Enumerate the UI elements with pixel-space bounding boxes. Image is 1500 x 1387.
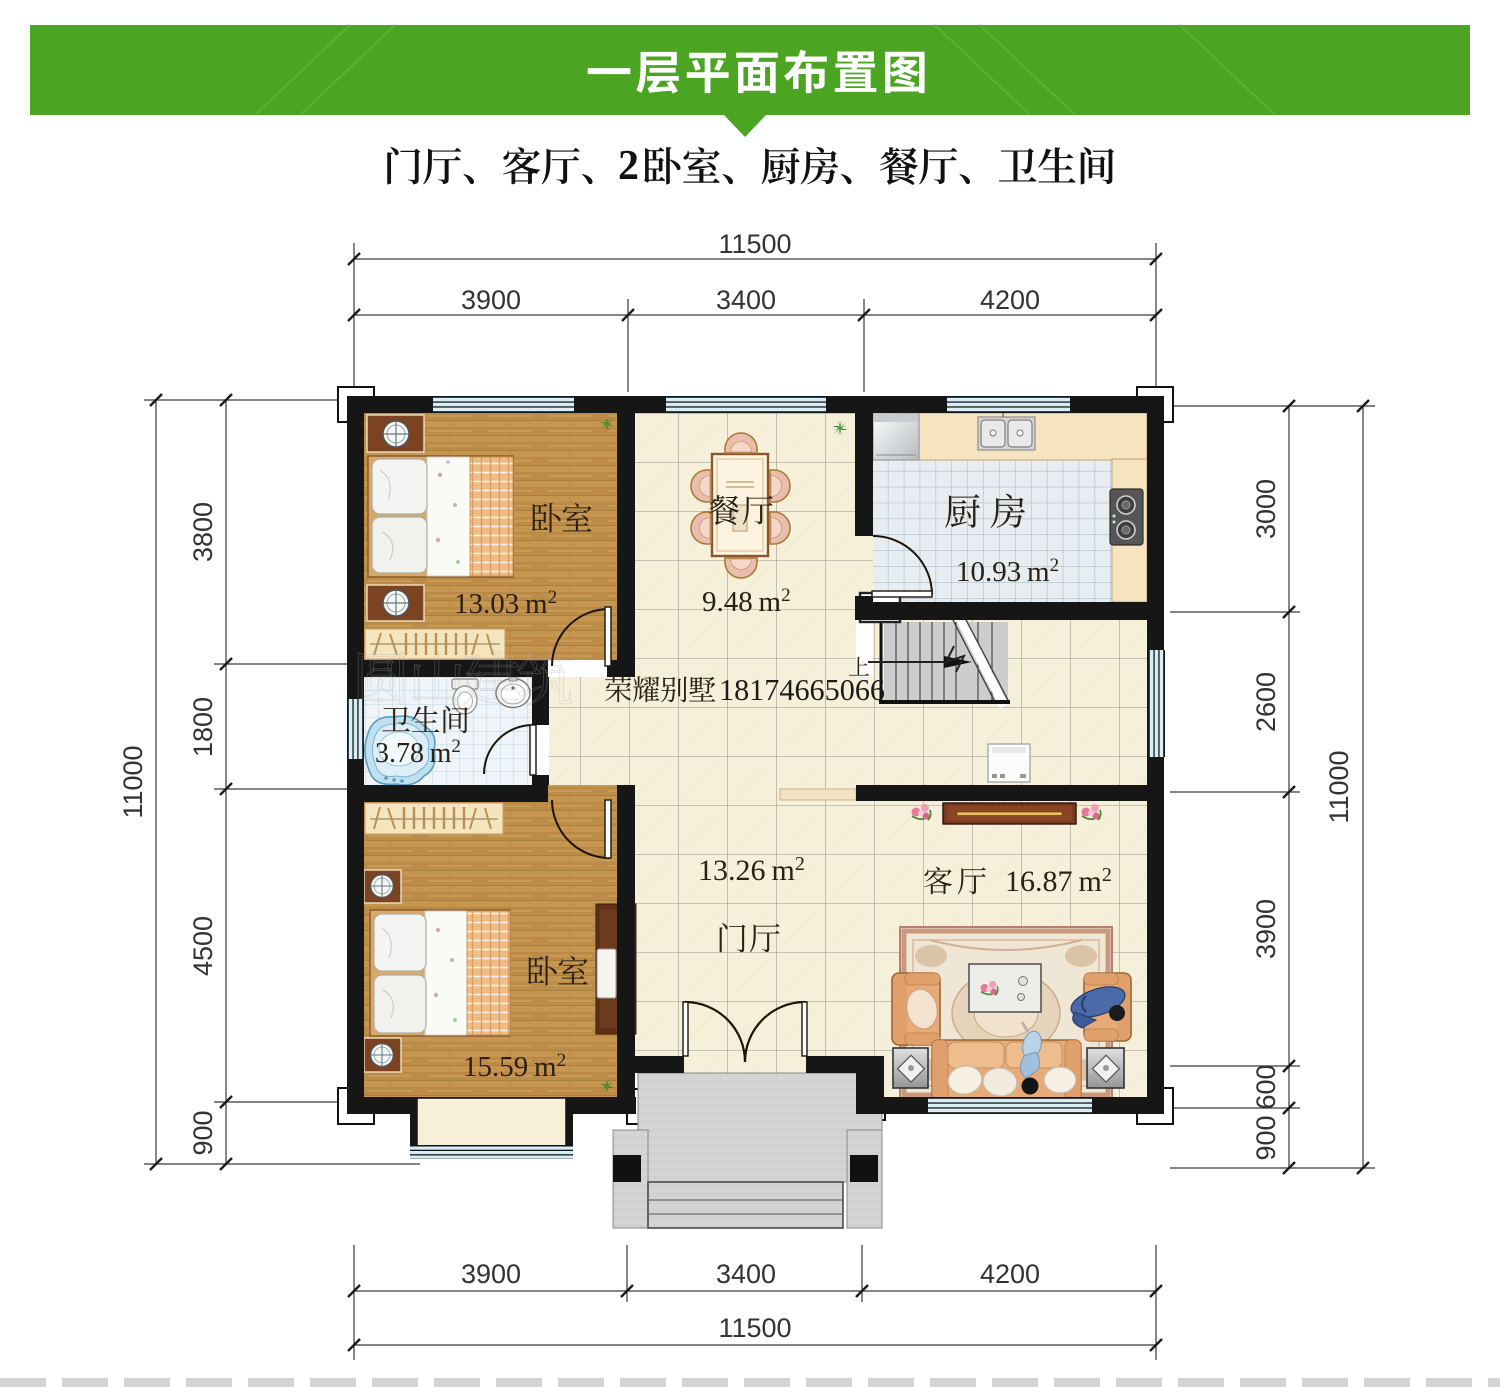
svg-text:16.87 m2: 16.87 m2	[1005, 864, 1112, 898]
svg-text:18174665066: 18174665066	[719, 672, 885, 707]
svg-text:3000: 3000	[1251, 479, 1281, 539]
svg-text:1800: 1800	[188, 697, 218, 757]
svg-text:4200: 4200	[980, 285, 1040, 315]
svg-text:4200: 4200	[980, 1259, 1040, 1289]
svg-text:2600: 2600	[1251, 672, 1281, 732]
svg-text:11000: 11000	[1324, 750, 1354, 823]
svg-text:13.03 m2: 13.03 m2	[454, 587, 557, 620]
svg-text:15.59 m2: 15.59 m2	[463, 1050, 566, 1083]
svg-text:11500: 11500	[718, 1313, 791, 1343]
svg-text:13.26 m2: 13.26 m2	[698, 853, 805, 887]
svg-text:9.48 m2: 9.48 m2	[702, 585, 791, 618]
svg-text:3800: 3800	[188, 502, 218, 562]
svg-text:2: 2	[618, 143, 639, 189]
svg-text:900: 900	[1251, 1115, 1281, 1160]
svg-text:3900: 3900	[461, 1259, 521, 1289]
svg-text:3400: 3400	[716, 285, 776, 315]
svg-text:11000: 11000	[118, 745, 148, 818]
svg-text:10.93 m2: 10.93 m2	[956, 555, 1059, 588]
svg-text:3900: 3900	[461, 285, 521, 315]
svg-text:3.78 m2: 3.78 m2	[375, 736, 461, 769]
svg-text:600: 600	[1251, 1064, 1281, 1109]
svg-text:900: 900	[188, 1110, 218, 1155]
svg-text:3400: 3400	[716, 1259, 776, 1289]
svg-text:3900: 3900	[1251, 899, 1281, 959]
svg-text:4500: 4500	[188, 916, 218, 976]
svg-text:11500: 11500	[718, 229, 791, 259]
